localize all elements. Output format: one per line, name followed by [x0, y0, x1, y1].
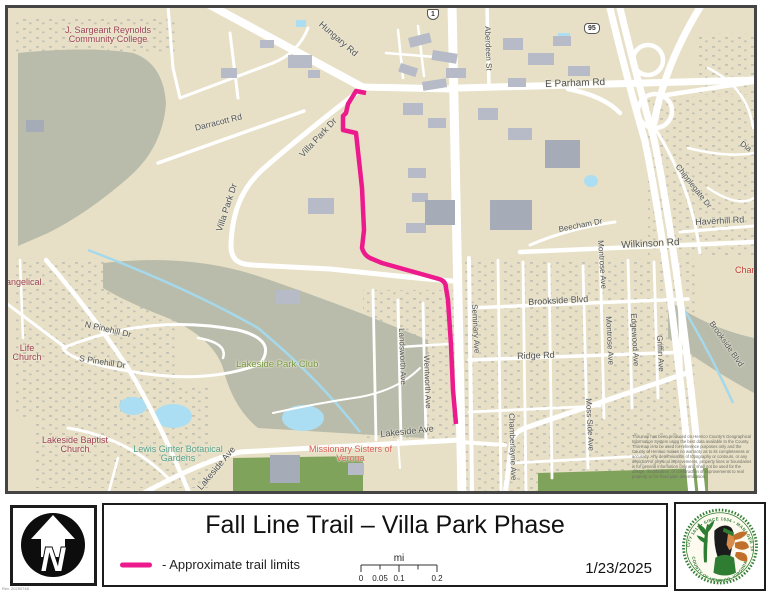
north-arrow-icon: N	[13, 508, 94, 583]
map-title: Fall Line Trail – Villa Park Phase	[104, 511, 666, 540]
scale-unit: mi	[394, 553, 405, 564]
trail-legend-label: - Approximate trail limits	[162, 557, 300, 572]
i95-route-shield: 95	[584, 23, 600, 34]
road-label-villa-park-1: Villa Park Dr	[298, 117, 339, 160]
scale-tick-2: 0.1	[393, 574, 405, 583]
trail-legend-swatch	[120, 561, 152, 569]
road-label-brookside-1: Brookside Blvd	[528, 295, 588, 308]
county-seal: CITY 1611 • SINCE 1634 • MANAGER 1934 CO…	[676, 504, 764, 589]
poi-label-reynolds-college: J. Sargeant Reynolds Community College	[43, 26, 173, 45]
poi-label-lakeside-park-club: Lakeside Park Club	[236, 360, 318, 370]
scale-tick-1: 0.05	[372, 574, 388, 583]
road-label-aberdeen: Aberdeen St	[483, 26, 493, 71]
road-label-villa-park-2: Villa Park Dr	[215, 183, 239, 233]
poi-label-lakeside-baptist: Lakeside Baptist Church	[30, 436, 120, 455]
road-label-landsworth: Landsworth Ave	[397, 328, 407, 385]
road-label-darracott: Darracott Rd	[194, 112, 243, 132]
road-label-edgewood: Edgewood Ave	[629, 313, 640, 367]
road-label-chipplegate: Chipplegate Dr	[673, 163, 712, 210]
map-date: 1/23/2025	[585, 560, 652, 577]
map-disclaimer: This map has been produced on Henrico Co…	[632, 434, 752, 479]
map-labels: Hungary Rd 1 95 Aberdeen St E Parham Rd …	[8, 8, 754, 491]
road-label-seminary: Seminary Ave	[470, 304, 481, 354]
road-label-parham: E Parham Rd	[545, 78, 605, 91]
revision-note: Rev. 20250748	[2, 586, 29, 591]
scale-tick-0: 0	[359, 574, 364, 583]
north-letter: N	[41, 541, 67, 579]
map-sheet: Hungary Rd 1 95 Aberdeen St E Parham Rd …	[0, 0, 768, 593]
north-arrow-box: N	[10, 505, 97, 586]
road-label-brookside-2: Brookside Blvd	[707, 320, 744, 369]
poi-label-life-church: Life Church	[8, 344, 46, 363]
road-label-montrose-1: Montrose Ave	[596, 240, 608, 289]
road-label-s-pinehill: S Pinehill Dr	[79, 354, 127, 370]
map-canvas: Hungary Rd 1 95 Aberdeen St E Parham Rd …	[5, 5, 757, 494]
road-label-lakeside-1: Lakeside Ave	[380, 424, 434, 439]
road-label-ridge: Ridge Rd	[517, 351, 555, 362]
road-label-beecham: Beecham Dr	[558, 218, 603, 235]
poi-label-missionary-sisters: Missionary Sisters of Verona	[293, 445, 408, 464]
road-label-wilkinson: Wilkinson Rd	[621, 238, 680, 252]
road-label-moss-side: Moss Side Ave	[584, 398, 595, 451]
road-label-griffin: Griffin Ave	[655, 335, 665, 372]
road-label-wentworth: Wentworth Ave	[422, 355, 432, 409]
poi-label-chamberlayne-frag: Chamb	[735, 266, 757, 275]
road-label-hungary: Hungary Rd	[317, 20, 359, 59]
legend-row: - Approximate trail limits	[120, 557, 300, 572]
road-label-chamberlayne: Chamberlayne Ave	[507, 413, 518, 481]
title-block: Fall Line Trail – Villa Park Phase - App…	[102, 503, 668, 587]
road-label-n-pinehill: N Pinehill Dr	[84, 320, 132, 339]
us1-route-shield: 1	[427, 9, 439, 20]
poi-label-lewis-ginter: Lewis Ginter Botanical Gardens	[123, 445, 233, 464]
road-label-montrose-2: Montrose Ave	[604, 316, 615, 365]
road-label-haverhill: Haverhill Rd	[695, 215, 744, 227]
road-label-diamond-frag: Dia	[738, 140, 753, 154]
poi-label-evangelical-frag: angelical	[6, 278, 42, 287]
county-seal-box: CITY 1611 • SINCE 1634 • MANAGER 1934 CO…	[674, 502, 766, 591]
scale-bar: mi 0 0.05 0.1 0.2	[344, 553, 454, 588]
scale-tick-3: 0.2	[431, 574, 443, 583]
